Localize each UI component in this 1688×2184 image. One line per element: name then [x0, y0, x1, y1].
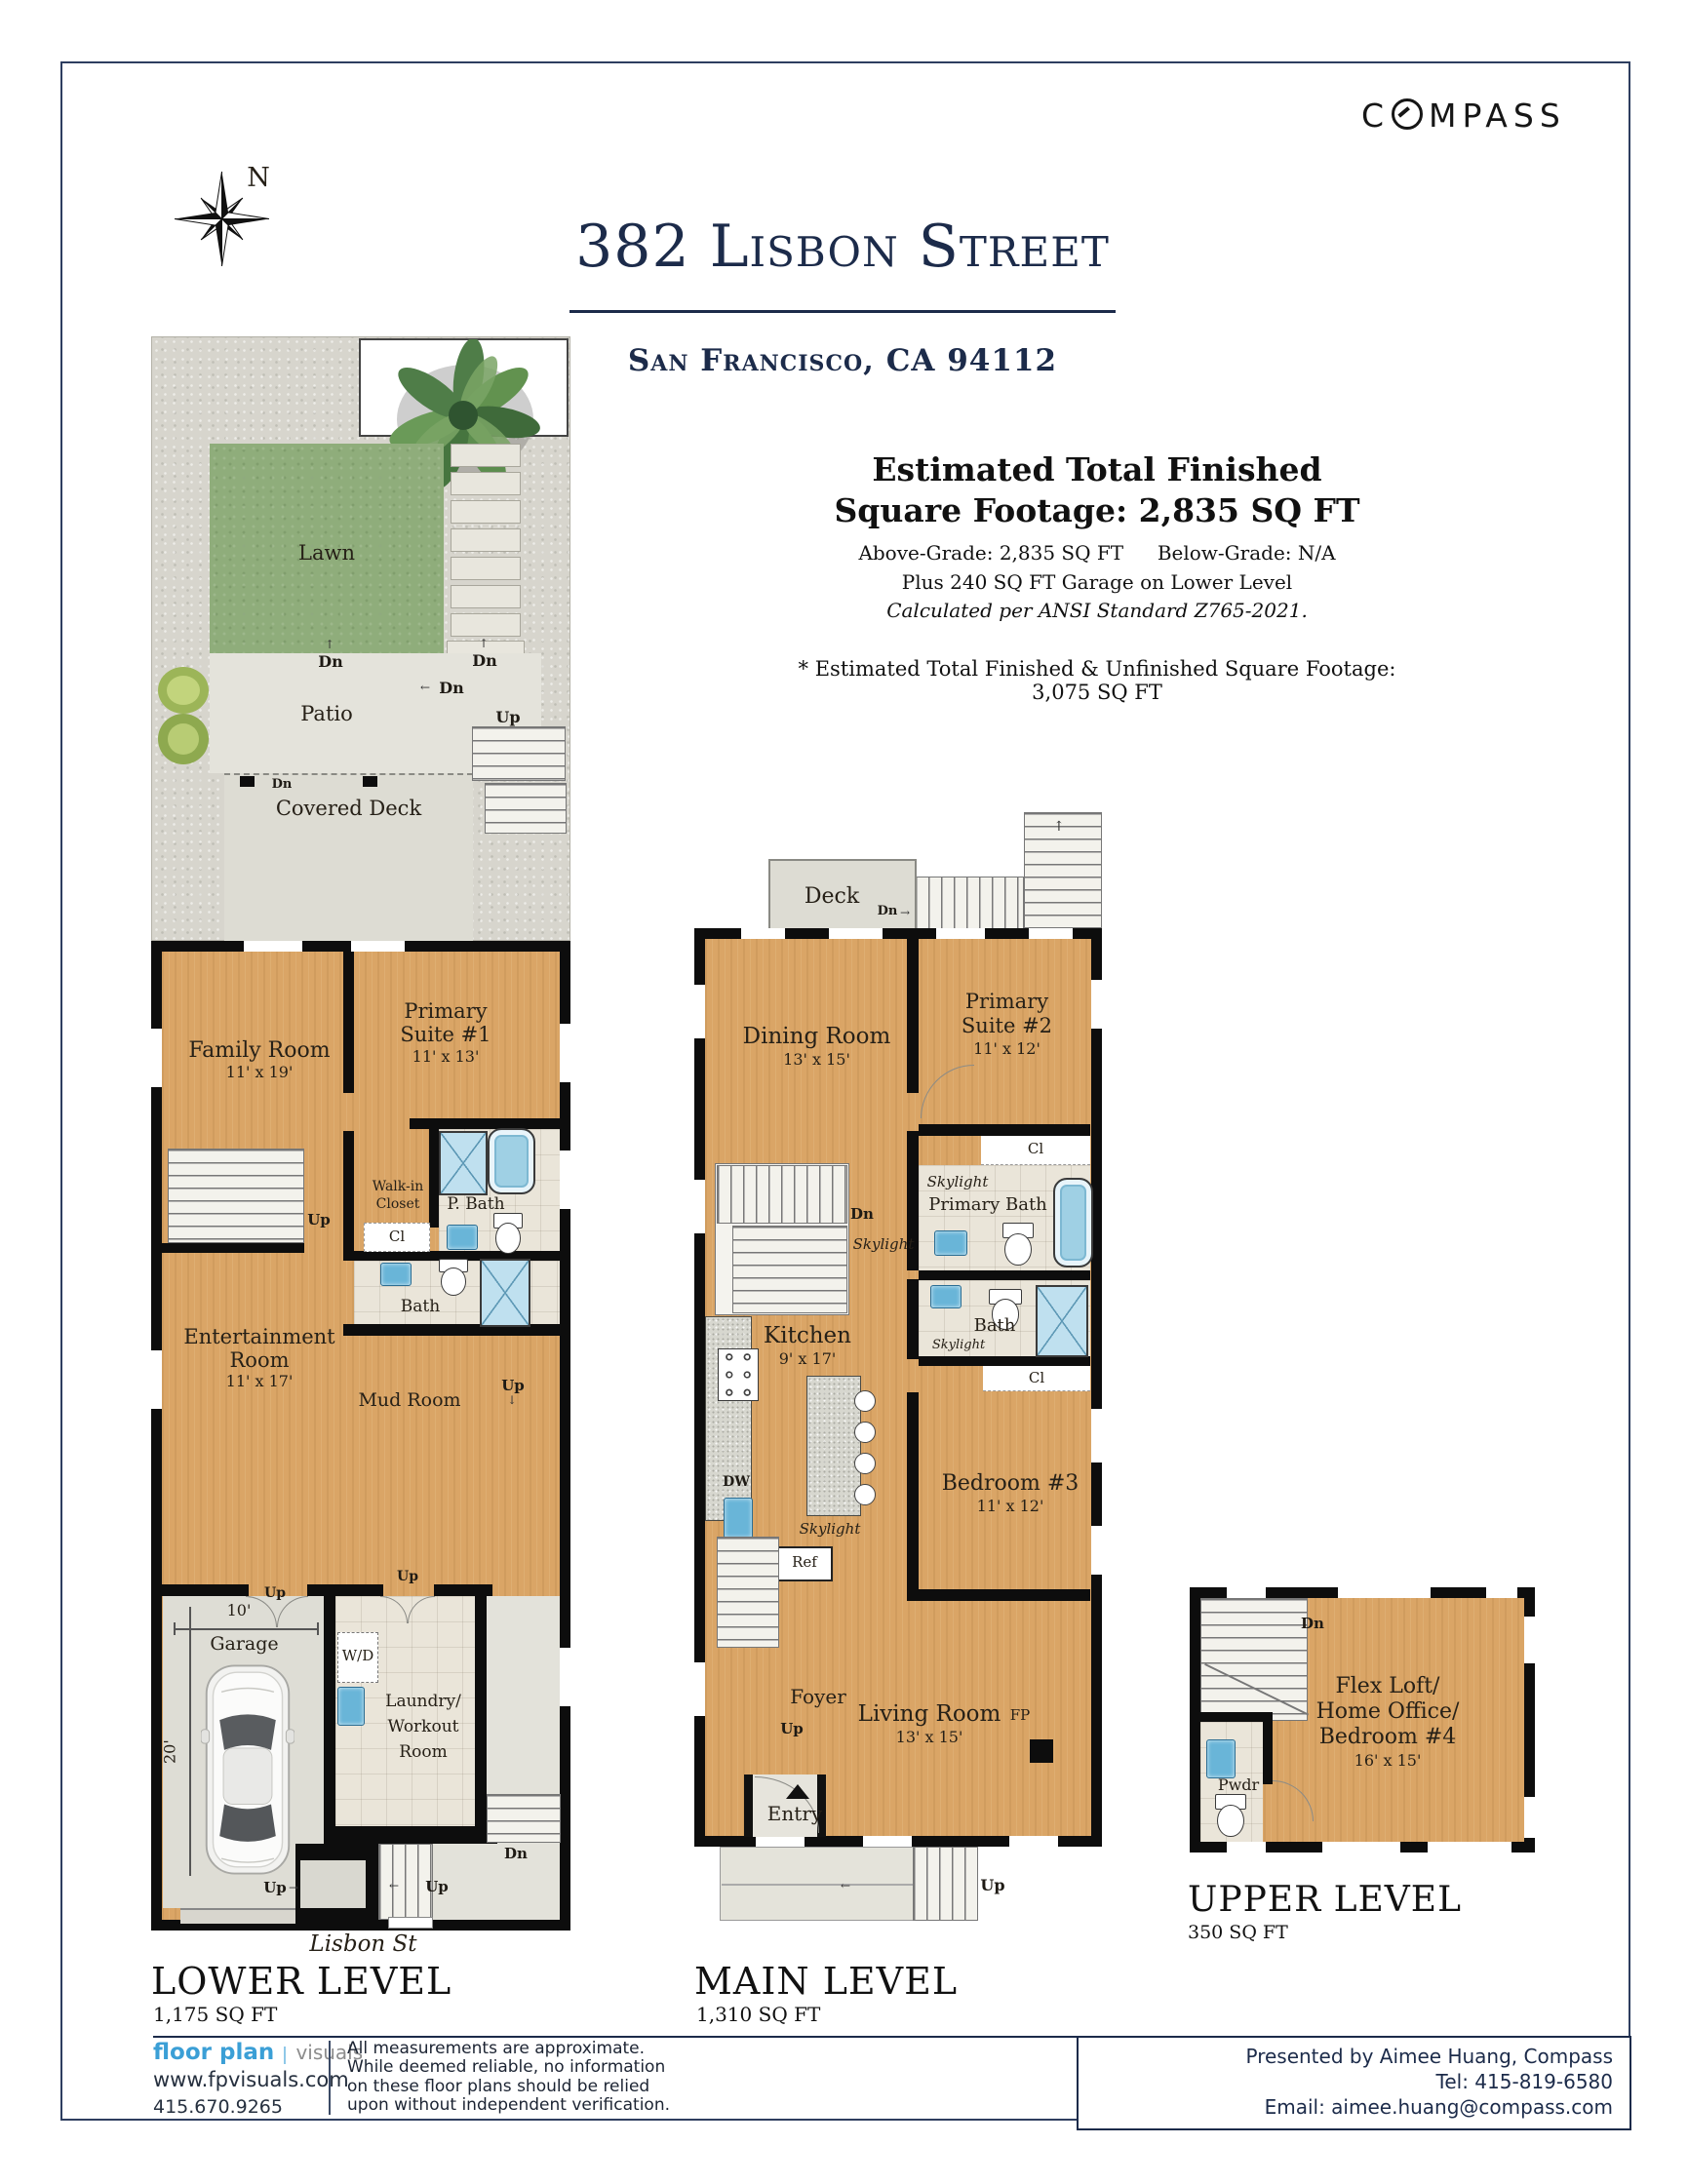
window	[1227, 1842, 1266, 1852]
fireplace-label: FP	[1002, 1707, 1038, 1723]
up-arrow-icon: ↑	[479, 638, 489, 649]
left-arrow-icon: ←	[389, 1880, 399, 1891]
stool	[854, 1422, 876, 1443]
stairs-dn-label: Dn	[843, 1205, 882, 1223]
stepping-stone	[451, 557, 521, 580]
window	[1091, 980, 1102, 1029]
kitchen-sink	[724, 1498, 753, 1539]
stool	[854, 1484, 876, 1505]
stepping-stone	[451, 528, 521, 552]
footer-logo: floor plan visuals	[153, 2040, 368, 2065]
kitchen-counter	[705, 1316, 752, 1521]
summary-line2: Square Footage: 2,835 SQ FT	[790, 491, 1404, 529]
window	[1009, 1836, 1058, 1847]
toilet	[493, 1213, 521, 1252]
dim-line	[174, 1628, 318, 1630]
window	[694, 1180, 705, 1233]
main-level-sqft: 1,310 SQ FT	[696, 2005, 911, 2026]
walkin-label-2: Closet	[363, 1197, 433, 1212]
dim-tick	[317, 1622, 319, 1635]
flex-label-3: Bedroom #4	[1271, 1726, 1505, 1749]
main-level-title: MAIN LEVEL	[694, 1962, 1016, 2002]
window	[756, 1836, 805, 1847]
logo-separator	[284, 2047, 286, 2064]
bush-icon	[153, 661, 214, 770]
kitchen-label: Kitchen	[749, 1324, 866, 1348]
front-steps-treads	[913, 1847, 978, 1921]
window	[151, 1029, 162, 1087]
front-steps-up: Up	[973, 1876, 1012, 1894]
window	[244, 941, 302, 952]
stairs-up-label: Up	[299, 1211, 338, 1228]
footer-divider-vertical	[329, 2041, 331, 2115]
ent-room-label-2: Room	[181, 1349, 337, 1372]
corridor-dn: Dn	[496, 1845, 535, 1862]
ent-room-dims: 11' x 17'	[181, 1373, 337, 1389]
primary-bath-label: Primary Bath	[924, 1195, 1051, 1214]
window	[560, 1150, 570, 1209]
summary-grades: Above-Grade: 2,835 SQ FT Below-Grade: N/…	[790, 541, 1404, 565]
left-arrow-icon: ←	[420, 682, 430, 693]
street-label: Lisbon St	[293, 1932, 434, 1957]
covered-deck-dn: Dn	[265, 777, 298, 792]
covered-deck-label: Covered Deck	[224, 798, 473, 820]
below-grade: Below-Grade: N/A	[1158, 541, 1336, 565]
primary-bath-skylight: Skylight	[914, 1174, 1001, 1189]
kitchen-skylight: Skylight	[788, 1521, 872, 1537]
entry-up: Up	[417, 1878, 456, 1895]
wall	[162, 1243, 304, 1253]
stepping-stone	[451, 472, 521, 495]
family-room-dims: 11' x 19'	[181, 1064, 337, 1080]
above-grade: Above-Grade: 2,835 SQ FT	[858, 541, 1123, 565]
foyer-stairs	[717, 1537, 779, 1648]
garage-label: Garage	[193, 1634, 295, 1655]
window	[829, 928, 883, 939]
stairs-dn-lower-run	[732, 1226, 847, 1313]
family-room-label: Family Room	[181, 1039, 337, 1063]
north-label: N	[242, 164, 275, 192]
garage-door-apron	[180, 1908, 295, 1924]
car-top-view	[201, 1659, 294, 1880]
living-room-label: Living Room	[846, 1702, 1012, 1727]
dim-line	[189, 1607, 191, 1876]
side-door-alcove	[300, 1860, 366, 1908]
bed3-dims: 11' x 12'	[928, 1498, 1092, 1514]
mud-room-label: Mud Room	[341, 1390, 478, 1411]
stepping-stone	[451, 585, 521, 608]
window	[560, 1648, 570, 1706]
bathtub	[488, 1128, 535, 1194]
up-arrow-icon: ↑	[1053, 820, 1065, 834]
powder-label: Pwdr	[1205, 1776, 1272, 1793]
corridor-stairs	[487, 1794, 561, 1843]
summary-block: Estimated Total Finished Square Footage:…	[790, 450, 1404, 704]
stairs-up	[168, 1149, 304, 1243]
disclaimer-line: All measurements are approximate.	[347, 2040, 679, 2058]
presented-by: Presented by Aimee Huang, Compass	[1086, 2045, 1613, 2068]
laundry-label-2: Workout	[375, 1718, 471, 1735]
garage-depth-dim: 20'	[161, 1731, 177, 1774]
left-arrow-icon: ←	[841, 1880, 850, 1891]
wall	[343, 1131, 354, 1258]
flex-dims: 16' x 15'	[1271, 1752, 1505, 1769]
disclaimer-line: on these floor plans should be relied	[347, 2078, 679, 2096]
sink	[380, 1263, 412, 1286]
wall	[335, 1826, 497, 1844]
footer-disclaimer: All measurements are approximate. While …	[347, 2040, 679, 2116]
front-steps-line	[722, 1884, 913, 1886]
shower	[480, 1259, 530, 1327]
footer-url: www.fpvisuals.com	[153, 2068, 377, 2091]
patio-label: Patio	[210, 703, 444, 725]
bed3-label: Bedroom #3	[928, 1472, 1092, 1496]
patio-dn: Dn	[433, 679, 470, 697]
laundry-label-3: Room	[375, 1743, 471, 1761]
step	[388, 1917, 433, 1929]
ansi-note: Calculated per ANSI Standard Z765-2021.	[790, 599, 1404, 622]
living-room-dims: 13' x 15'	[846, 1729, 1012, 1745]
wall	[907, 1392, 919, 1591]
down-arrow-icon: ↓	[507, 1394, 517, 1406]
fireplace	[1030, 1739, 1053, 1763]
mud-up: Up	[493, 1377, 532, 1394]
garage-door-up: Up	[255, 1585, 294, 1601]
upper-level-title: UPPER LEVEL	[1188, 1882, 1519, 1920]
bath-skylight: Skylight	[921, 1339, 997, 1352]
upper-level-sqft: 350 SQ FT	[1188, 1923, 1363, 1943]
kitchen-dims: 9' x 17'	[749, 1350, 866, 1367]
laundry-label-1: Laundry/	[375, 1693, 471, 1710]
foyer-up: Up	[774, 1720, 809, 1737]
logo-floorplan: floor plan	[153, 2040, 274, 2065]
window	[1227, 1587, 1266, 1598]
up-arrow-icon: ↑	[325, 639, 334, 650]
sink	[447, 1225, 478, 1250]
window	[694, 1662, 705, 1716]
wall	[907, 1279, 919, 1359]
wall	[151, 1584, 249, 1596]
suite1-label-1: Primary	[387, 1000, 504, 1023]
garage-note: Plus 240 SQ FT Garage on Lower Level	[790, 570, 1404, 594]
window	[351, 941, 405, 952]
stool	[854, 1453, 876, 1474]
garage-width-dim: 10'	[205, 1602, 273, 1618]
right-arrow-icon: →	[289, 1882, 298, 1893]
pbath-label: P. Bath	[435, 1195, 517, 1213]
bath-label: Bath	[962, 1316, 1028, 1335]
window	[1428, 1842, 1511, 1852]
toilet	[439, 1259, 466, 1294]
suite2-label-2: Suite #2	[946, 1015, 1068, 1037]
side-corridor	[487, 1596, 560, 1920]
wall	[343, 952, 354, 1093]
bath-label: Bath	[388, 1298, 452, 1315]
ent-room-label-1: Entertainment	[181, 1326, 337, 1348]
suite2-label-1: Primary	[946, 991, 1068, 1013]
stones-dn: Dn	[466, 651, 503, 670]
dw-label: DW	[715, 1474, 758, 1490]
title-underline	[569, 310, 1116, 313]
window	[151, 1350, 162, 1409]
toilet	[1002, 1223, 1032, 1264]
suite2-closet-label: Cl	[981, 1141, 1090, 1156]
lower-level-sqft: 1,175 SQ FT	[153, 2005, 368, 2026]
footer-phone: 415.670.9265	[153, 2096, 377, 2118]
wall	[919, 1270, 1090, 1280]
stairs-skylight: Skylight	[844, 1236, 923, 1252]
upper-dn: Dn	[1293, 1615, 1332, 1632]
wall	[475, 1596, 487, 1830]
patio-up: Up	[491, 708, 526, 726]
laundry-sink	[337, 1687, 365, 1726]
stepping-stone	[451, 500, 521, 524]
deck-post	[363, 776, 377, 787]
presented-block: Presented by Aimee Huang, Compass Tel: 4…	[1086, 2045, 1613, 2119]
deck-dn: Dn	[871, 904, 904, 918]
window	[1091, 1526, 1102, 1575]
page-title: 382 Lisbon Street	[380, 213, 1305, 281]
stepping-stone	[451, 613, 521, 637]
fridge-label: Ref	[776, 1554, 833, 1570]
laundry-up: Up	[388, 1569, 427, 1584]
deck-post	[240, 776, 255, 787]
window	[560, 1024, 570, 1082]
presented-email: Email: aimee.huang@compass.com	[1086, 2095, 1613, 2119]
lawn-dn: Dn	[312, 652, 349, 671]
stool	[854, 1390, 876, 1412]
wall	[919, 1356, 1090, 1366]
disclaimer-line: While deemed reliable, no information	[347, 2058, 679, 2077]
foyer-label: Foyer	[780, 1687, 856, 1708]
dining-room-dims: 13' x 15'	[736, 1051, 897, 1068]
suite1-label-2: Suite #1	[387, 1024, 504, 1046]
bed3-closet-label: Cl	[983, 1370, 1090, 1385]
walkin-label-1: Walk-in	[363, 1180, 433, 1194]
shower	[439, 1131, 488, 1195]
wall	[307, 1584, 383, 1596]
window	[1091, 1409, 1102, 1462]
window	[1524, 1617, 1535, 1663]
window	[1524, 1797, 1535, 1838]
wall	[343, 1324, 570, 1336]
wall	[907, 1589, 1090, 1601]
compass-brand-rest: MPASS	[1429, 97, 1566, 135]
wd-label: W/D	[330, 1648, 386, 1663]
wall	[1200, 1712, 1273, 1722]
window	[1322, 1842, 1400, 1852]
suite2-dims: 11' x 12'	[946, 1040, 1068, 1057]
disclaimer-line: upon without independent verification.	[347, 2096, 679, 2115]
window	[1338, 1587, 1431, 1598]
compass-brand-logo: CMPASS	[1361, 96, 1615, 135]
flex-label-1: Flex Loft/	[1271, 1675, 1505, 1698]
shower	[1036, 1285, 1088, 1357]
window	[1486, 1587, 1517, 1598]
stairs-dn-upper-run	[717, 1165, 847, 1224]
flex-label-2: Home Office/	[1271, 1700, 1505, 1724]
patio-stairs	[472, 726, 566, 781]
window	[741, 928, 785, 939]
summary-line1: Estimated Total Finished	[790, 450, 1404, 488]
wall	[907, 939, 919, 1093]
bathtub	[1053, 1178, 1093, 1267]
toilet	[1215, 1794, 1244, 1835]
window	[936, 928, 985, 939]
lawn-label: Lawn	[210, 542, 444, 565]
suite1-dims: 11' x 13'	[387, 1048, 504, 1065]
sink	[930, 1285, 962, 1308]
dining-room-label: Dining Room	[736, 1025, 897, 1049]
sink	[1206, 1739, 1236, 1778]
summary-footnote: * Estimated Total Finished & Unfinished …	[790, 657, 1404, 704]
window	[1029, 928, 1073, 939]
entry-arrow-icon	[786, 1784, 809, 1799]
entry-label: Entry	[759, 1804, 831, 1825]
compass-o-icon	[1392, 98, 1423, 130]
window	[863, 1836, 912, 1847]
window	[694, 985, 705, 1038]
presented-tel: Tel: 415-819-6580	[1086, 2070, 1613, 2093]
dim-tick	[174, 1622, 176, 1635]
patio-stairs-lower	[485, 783, 567, 834]
stepping-stone	[451, 444, 521, 467]
driveway-up: Up	[257, 1879, 293, 1896]
lower-level-title: LOWER LEVEL	[151, 1962, 473, 2002]
floor-plan-sheet: N 382 Lisbon Street San Francisco, CA 94…	[0, 0, 1688, 2184]
kitchen-island	[806, 1376, 861, 1516]
wall	[919, 1124, 1090, 1136]
right-arrow-icon: →	[900, 907, 910, 918]
closet-label: Cl	[364, 1228, 430, 1244]
wall	[434, 1584, 492, 1596]
sink	[934, 1230, 967, 1256]
